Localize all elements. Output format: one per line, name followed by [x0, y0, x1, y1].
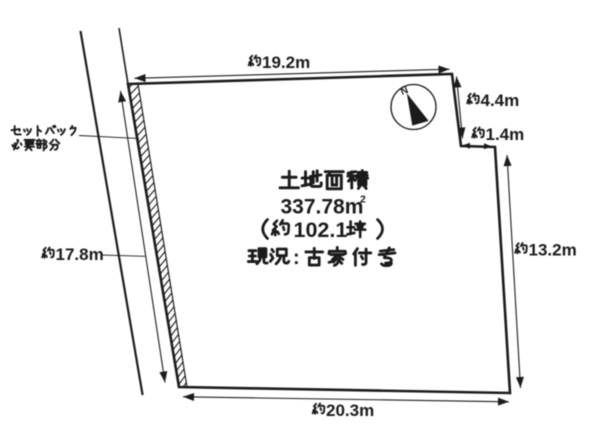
svg-text:102.1: 102.1: [294, 218, 348, 242]
svg-text:4.4m: 4.4m: [481, 91, 520, 110]
svg-text:2: 2: [360, 194, 366, 206]
svg-text:19.2m: 19.2m: [262, 53, 310, 72]
svg-text:20.3m: 20.3m: [326, 401, 374, 420]
svg-text:17.8m: 17.8m: [56, 245, 104, 264]
svg-text::: :: [293, 247, 300, 269]
svg-text:1.4m: 1.4m: [486, 125, 525, 144]
svg-text:13.2m: 13.2m: [529, 241, 577, 260]
svg-text:337.78m: 337.78m: [281, 196, 364, 219]
